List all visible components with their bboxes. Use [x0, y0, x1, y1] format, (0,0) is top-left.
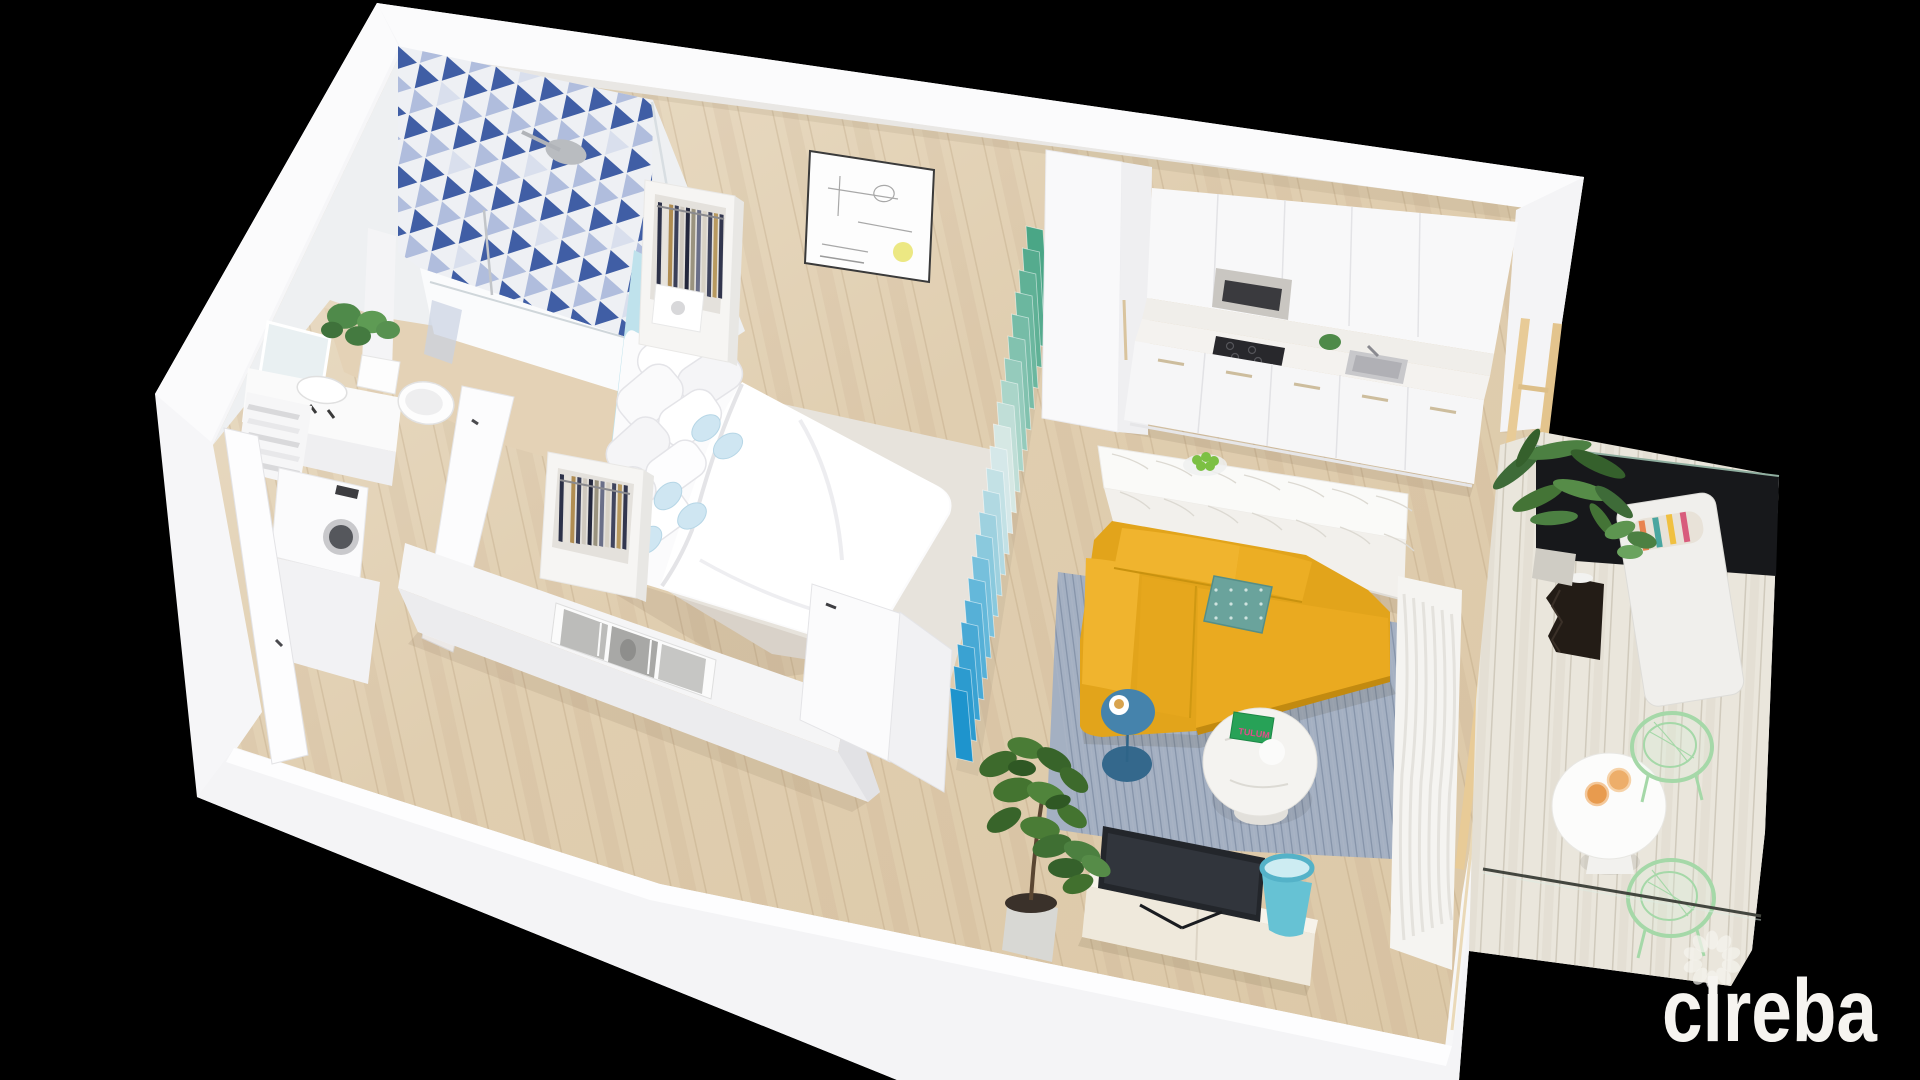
- svg-text:cireba: cireba: [1662, 960, 1878, 1060]
